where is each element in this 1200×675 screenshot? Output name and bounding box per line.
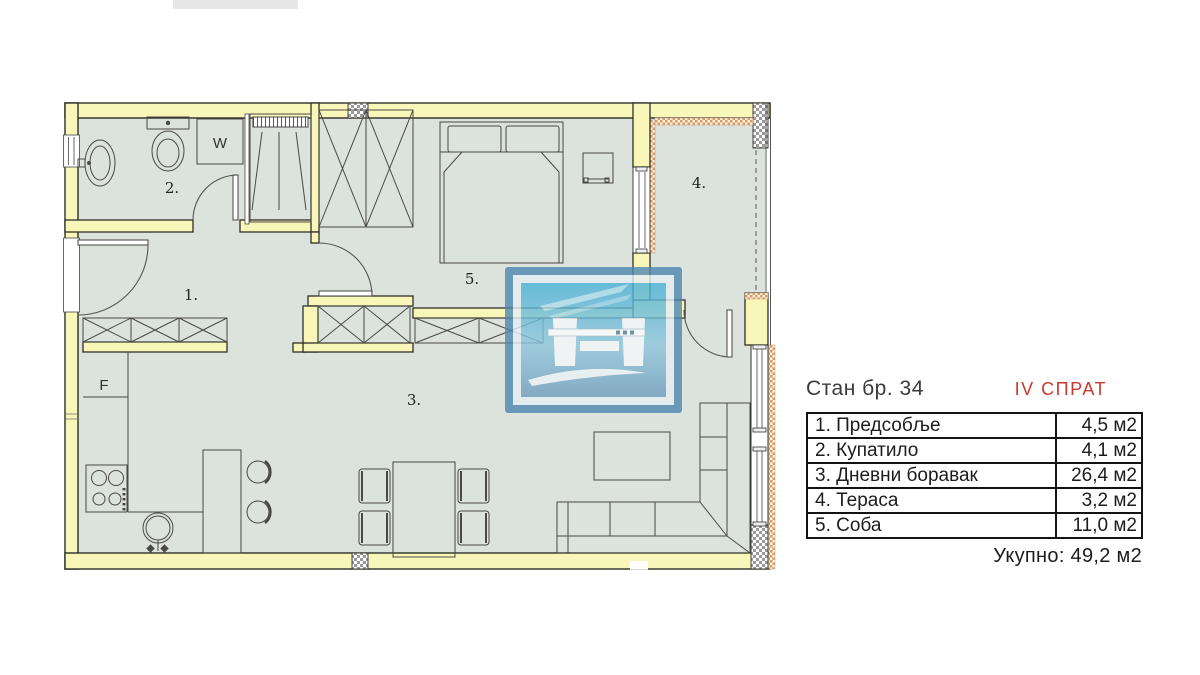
insulation-right <box>769 345 775 569</box>
wall-top <box>65 103 770 118</box>
info-panel: Стан бр. 34 IV СПРАТ 1. Предсобље 4,5 м2… <box>806 377 1143 568</box>
label-room-2: 2. <box>165 179 179 197</box>
closet-a-slab <box>83 342 227 352</box>
label-room-3: 3. <box>407 391 421 409</box>
area-table: 1. Предсобље 4,5 м2 2. Купатило 4,1 м2 3… <box>806 412 1143 539</box>
room-name: 4. Тераса <box>808 490 1055 512</box>
bathroom-wall-east <box>311 103 319 232</box>
insulation-terrace-corner <box>745 293 768 299</box>
mid-wall-upper-bar <box>308 296 413 306</box>
floor-plan-svg: 1. 2. 3. 4. 5. W F <box>0 0 1200 675</box>
bottom-wall-notch <box>630 561 648 570</box>
shaft-bottom-right <box>751 525 768 569</box>
table-row: 4. Тераса 3,2 м2 <box>808 487 1141 512</box>
watermark-h-left <box>553 318 577 366</box>
label-washing-machine: W <box>213 135 228 152</box>
room-area: 4,1 м2 <box>1055 439 1141 462</box>
shaft-bottom <box>352 553 368 569</box>
room-name: 5. Соба <box>808 515 1055 537</box>
living-east-wall <box>751 345 768 526</box>
bathroom-wall-south-left <box>65 220 193 232</box>
screenshot-stage: 1. 2. 3. 4. 5. W F Стан бр. 34 IV СПРАТ … <box>0 0 1200 675</box>
wall-left <box>65 103 78 569</box>
insulation-top <box>655 118 753 125</box>
closet-b-slab <box>303 343 413 352</box>
watermark-ruler-ticks <box>616 331 634 335</box>
watermark-h-bar <box>580 341 619 351</box>
table-row: 5. Соба 11,0 м2 <box>808 512 1141 537</box>
watermark-h-right <box>622 318 645 366</box>
label-room-1: 1. <box>184 286 198 304</box>
hall-bedroom-wall-stub <box>311 232 319 243</box>
label-room-4: 4. <box>692 174 706 192</box>
bathroom-window <box>64 135 80 167</box>
room-area: 3,2 м2 <box>1055 489 1141 512</box>
total-area: Укупно: 49,2 м2 <box>806 545 1143 568</box>
room-name: 2. Купатило <box>808 440 1055 462</box>
room-name: 1. Предсобље <box>808 415 1055 437</box>
table-row: 3. Дневни боравак 26,4 м2 <box>808 462 1141 487</box>
bedroom-east-wall-upper <box>633 103 650 167</box>
room-area: 26,4 м2 <box>1055 464 1141 487</box>
table-row: 2. Купатило 4,1 м2 <box>808 437 1141 462</box>
label-fridge: F <box>99 377 108 394</box>
insulation-left <box>650 120 655 253</box>
bedroom-terrace-window <box>633 167 650 253</box>
entrance-opening <box>64 238 80 312</box>
apartment-title: Стан бр. 34 <box>806 377 924 401</box>
terrace-corner-wall <box>745 293 768 345</box>
room-area: 4,5 м2 <box>1055 414 1141 437</box>
room-name: 3. Дневни боравак <box>808 465 1055 487</box>
wall-bottom <box>65 553 770 569</box>
watermark-logo <box>505 267 682 413</box>
table-row: 1. Предсобље 4,5 м2 <box>808 414 1141 437</box>
floor-label: IV СПРАТ <box>1015 379 1107 400</box>
label-room-5: 5. <box>465 270 479 288</box>
info-panel-header: Стан бр. 34 IV СПРАТ <box>806 377 1143 410</box>
room-area: 11,0 м2 <box>1055 514 1141 537</box>
